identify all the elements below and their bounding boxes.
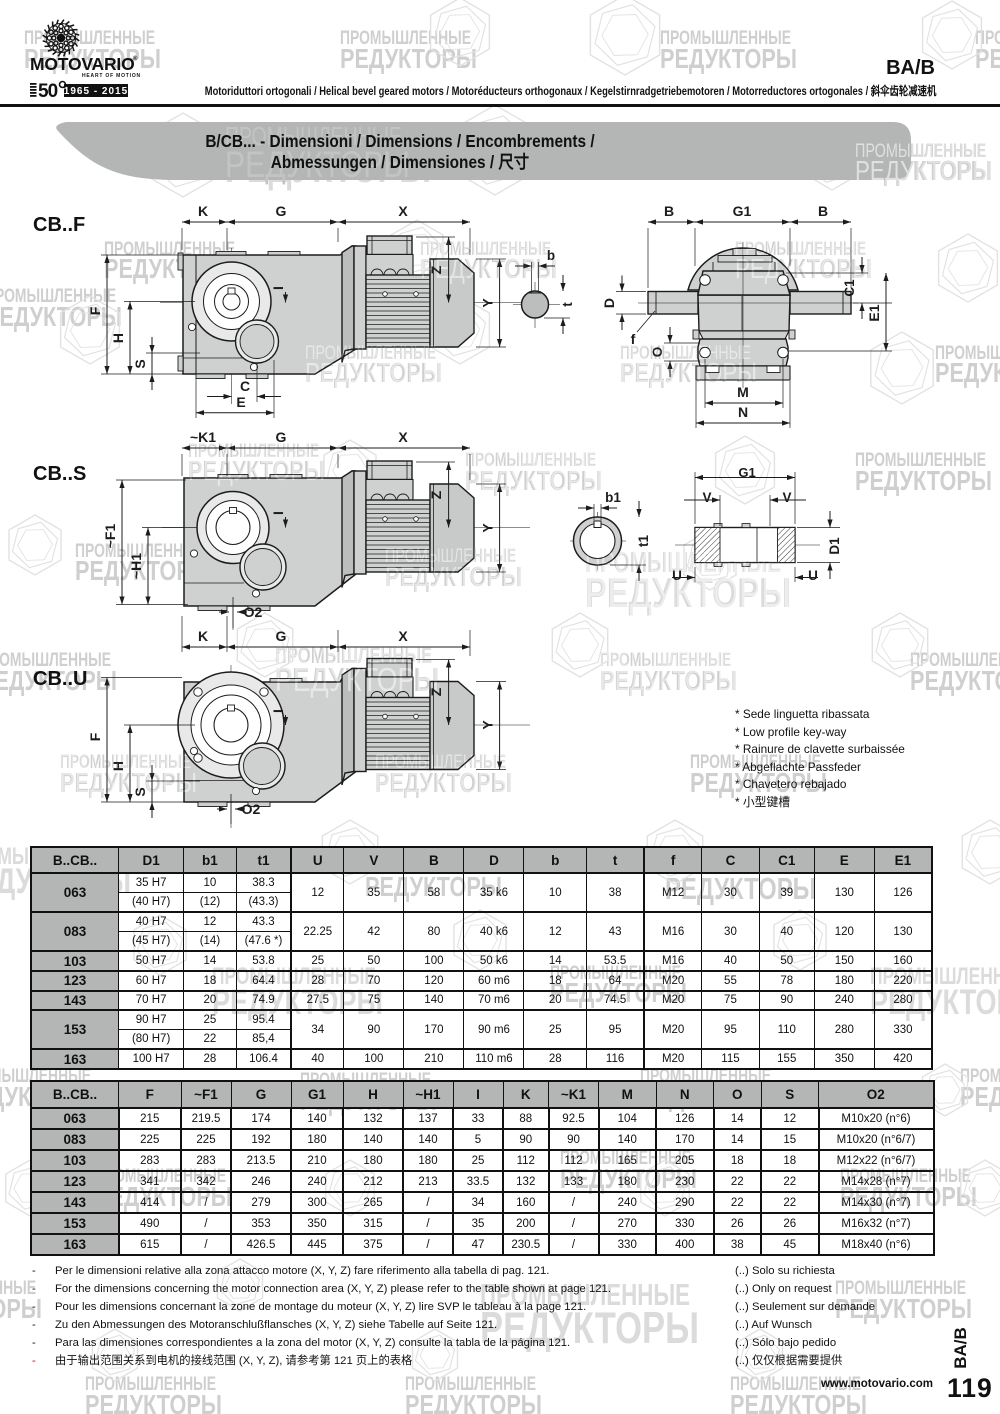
svg-text:V: V: [702, 490, 711, 505]
svg-text:M: M: [737, 384, 749, 400]
svg-text:V: V: [782, 490, 791, 505]
svg-text:U: U: [672, 568, 682, 583]
svg-text:I: I: [270, 286, 286, 290]
svg-text:O2: O2: [242, 801, 261, 817]
svg-text:D: D: [601, 298, 617, 308]
svg-text:F: F: [87, 306, 103, 315]
svg-text:t1: t1: [636, 535, 651, 547]
svg-text:H: H: [110, 333, 126, 343]
svg-text:B: B: [818, 203, 828, 219]
svg-text:X: X: [398, 429, 408, 445]
svg-text:Y: Y: [480, 720, 496, 730]
svg-text:G: G: [276, 628, 287, 644]
svg-text:C: C: [240, 378, 250, 394]
svg-text:G: G: [276, 429, 287, 445]
svg-text:E1: E1: [866, 304, 882, 321]
svg-text:~H1: ~H1: [128, 553, 144, 579]
svg-text:~F1: ~F1: [102, 524, 118, 549]
svg-text:K: K: [198, 628, 208, 644]
svg-text:t: t: [560, 302, 575, 307]
svg-text:РЕДУКТОРЫ: РЕДУКТОРЫ: [730, 1389, 867, 1414]
svg-text:ПРОМЫШЛЕННЫЕ: ПРОМЫШЛЕННЫЕ: [85, 1373, 216, 1395]
svg-text:S: S: [132, 787, 148, 796]
svg-text:ПРОМЫШЛЕННЫЕ: ПРОМЫШЛЕННЫЕ: [405, 1373, 536, 1395]
svg-text:ПРОМЫШЛЕННЫЕ: ПРОМЫШЛЕННЫЕ: [960, 1065, 1000, 1087]
svg-text:G1: G1: [738, 465, 755, 480]
svg-text:РЕДУКТОРЫ: РЕДУКТОРЫ: [405, 1389, 542, 1414]
svg-text:B: B: [664, 203, 674, 219]
svg-text:O: O: [650, 347, 665, 358]
svg-text:S: S: [132, 359, 148, 368]
svg-text:Z: Z: [428, 490, 444, 499]
svg-text:ПРОМЫШЛЕННЫЕ: ПРОМЫШЛЕННЫЕ: [0, 1277, 36, 1299]
svg-text:Z: Z: [428, 265, 444, 274]
svg-text:Y: Y: [480, 298, 496, 308]
svg-text:X: X: [398, 628, 408, 644]
svg-text:X: X: [398, 203, 408, 219]
svg-text:I: I: [270, 511, 286, 515]
svg-text:C1: C1: [842, 279, 857, 297]
svg-text:K: K: [198, 203, 208, 219]
svg-text:H: H: [110, 761, 126, 771]
svg-text:O2: O2: [244, 604, 263, 620]
svg-text:U: U: [808, 568, 818, 583]
svg-text:N: N: [738, 404, 748, 420]
svg-text:G1: G1: [733, 203, 752, 219]
svg-text:РЕДУКТОРЫ: РЕДУКТОРЫ: [960, 1081, 1000, 1112]
svg-text:Z: Z: [428, 687, 444, 696]
svg-text:b: b: [547, 248, 555, 263]
svg-text:D1: D1: [827, 537, 842, 555]
svg-text:E: E: [236, 394, 245, 410]
svg-text:Y: Y: [480, 523, 496, 533]
svg-text:b1: b1: [605, 490, 621, 505]
svg-text:~K1: ~K1: [190, 429, 216, 445]
svg-text:f: f: [631, 331, 636, 347]
svg-text:F: F: [87, 732, 103, 741]
svg-text:РЕДУКТОРЫ: РЕДУКТОРЫ: [85, 1389, 222, 1414]
svg-text:I: I: [270, 709, 286, 713]
svg-text:G: G: [276, 203, 287, 219]
